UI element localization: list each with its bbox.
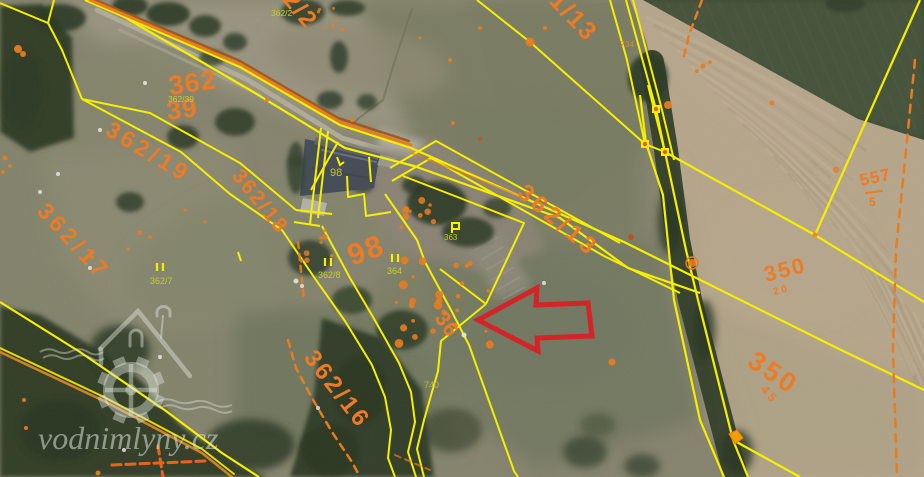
svg-text:5: 5 xyxy=(869,195,876,209)
svg-text:vodnimlyny.cz: vodnimlyny.cz xyxy=(38,420,219,456)
svg-text:362/2: 362/2 xyxy=(271,8,293,18)
svg-text:364: 364 xyxy=(387,266,402,276)
svg-text:363: 363 xyxy=(444,233,458,242)
svg-text:734: 734 xyxy=(620,39,634,49)
svg-text:362/39: 362/39 xyxy=(168,94,194,104)
svg-text:98: 98 xyxy=(330,167,342,179)
svg-text:362/7: 362/7 xyxy=(150,276,173,286)
svg-text:740: 740 xyxy=(424,380,439,390)
svg-text:362/8: 362/8 xyxy=(318,270,341,280)
